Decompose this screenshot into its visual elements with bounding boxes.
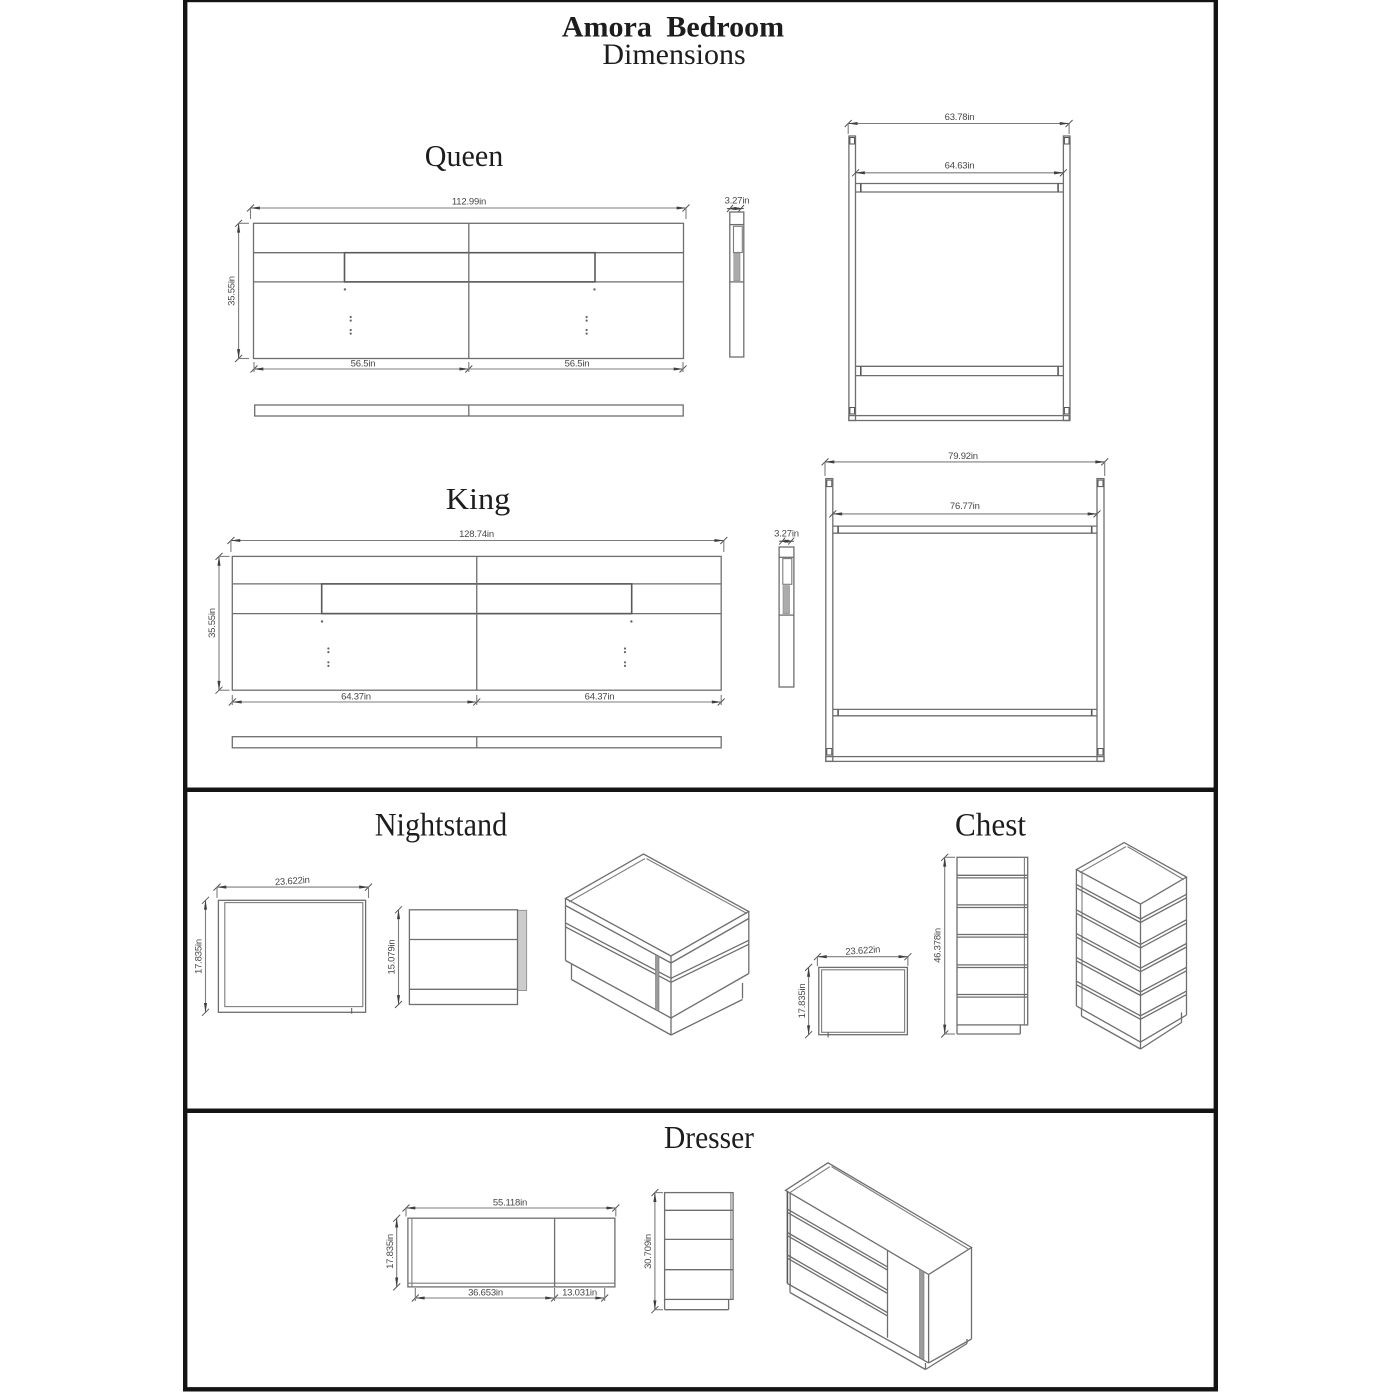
svg-text:128.74in: 128.74in: [459, 529, 494, 540]
svg-text:79.92in: 79.92in: [948, 451, 978, 462]
svg-text:Dresser: Dresser: [664, 1119, 754, 1155]
svg-text:Chest: Chest: [955, 808, 1026, 844]
svg-text:3.27in: 3.27in: [725, 196, 750, 207]
svg-text:17.835in: 17.835in: [194, 939, 205, 974]
svg-text:35.55in: 35.55in: [227, 276, 238, 306]
svg-text:17.835in: 17.835in: [797, 984, 808, 1019]
svg-text:76.77in: 76.77in: [950, 501, 980, 512]
svg-text:King: King: [446, 481, 511, 516]
svg-text:112.99in: 112.99in: [452, 197, 486, 208]
svg-text:36.653in: 36.653in: [468, 1288, 503, 1299]
svg-text:30.709in: 30.709in: [643, 1234, 654, 1269]
svg-text:55.118in: 55.118in: [493, 1198, 527, 1209]
svg-text:Dimensions: Dimensions: [602, 38, 745, 71]
svg-text:56.5in: 56.5in: [351, 359, 376, 370]
svg-text:64.63in: 64.63in: [945, 161, 975, 172]
svg-text:Nightstand: Nightstand: [375, 808, 508, 844]
svg-text:64.37in: 64.37in: [341, 692, 371, 703]
svg-text:56.5in: 56.5in: [565, 359, 590, 370]
svg-text:46.378in: 46.378in: [932, 928, 943, 963]
svg-text:Queen: Queen: [425, 138, 504, 173]
svg-text:35.55in: 35.55in: [207, 608, 218, 638]
svg-text:64.37in: 64.37in: [585, 692, 615, 703]
svg-text:15.079in: 15.079in: [387, 940, 398, 975]
svg-text:3.27in: 3.27in: [774, 529, 799, 540]
svg-text:17.835in: 17.835in: [385, 1234, 396, 1269]
svg-text:13.031in: 13.031in: [562, 1288, 597, 1299]
svg-text:63.78in: 63.78in: [945, 112, 975, 123]
